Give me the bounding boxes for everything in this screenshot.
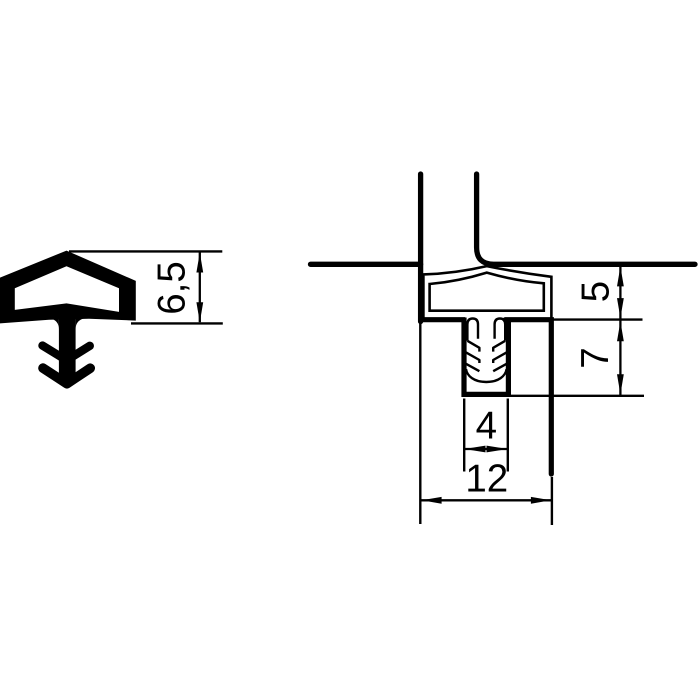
svg-text:6,5: 6,5 [151, 261, 194, 315]
svg-text:4: 4 [476, 405, 497, 448]
svg-text:7: 7 [574, 347, 617, 368]
svg-text:5: 5 [575, 281, 618, 302]
svg-text:12: 12 [465, 457, 508, 500]
